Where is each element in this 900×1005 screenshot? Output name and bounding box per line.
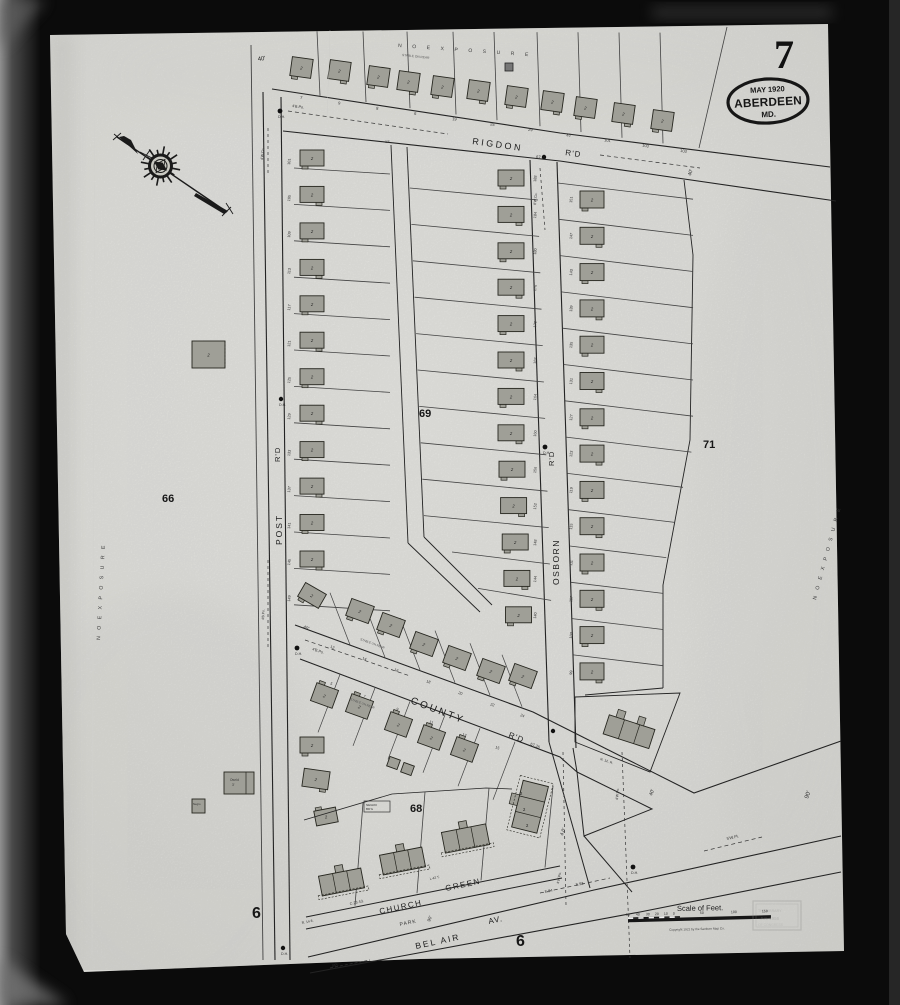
svg-text:103: 103 — [569, 632, 574, 639]
svg-text:152: 152 — [533, 503, 538, 510]
svg-text:71: 71 — [703, 439, 715, 451]
svg-text:101: 101 — [287, 158, 292, 165]
svg-text:121: 121 — [287, 340, 292, 347]
svg-text:D.H.: D.H. — [278, 115, 285, 119]
svg-text:68: 68 — [410, 803, 422, 815]
svg-text:12': 12' — [385, 140, 390, 144]
svg-text:137: 137 — [287, 486, 292, 493]
svg-text:30: 30 — [646, 912, 650, 916]
svg-text:180: 180 — [533, 248, 538, 255]
svg-text:D.H.: D.H. — [279, 403, 286, 407]
svg-text:117: 117 — [287, 304, 292, 311]
svg-text:133: 133 — [287, 450, 292, 457]
svg-text:172: 172 — [533, 321, 538, 328]
svg-text:6: 6 — [252, 905, 261, 922]
svg-text:131: 131 — [569, 378, 574, 385]
svg-text:OF CONGRESS: OF CONGRESS — [758, 923, 784, 927]
svg-text:50: 50 — [626, 913, 630, 917]
svg-text:7: 7 — [774, 32, 794, 77]
svg-text:143: 143 — [569, 269, 574, 276]
svg-text:168: 168 — [533, 357, 538, 364]
svg-text:107: 107 — [569, 596, 574, 603]
svg-text:69: 69 — [419, 408, 431, 420]
svg-text:129: 129 — [287, 413, 292, 420]
svg-text:151: 151 — [569, 196, 574, 203]
svg-text:149: 149 — [287, 595, 292, 602]
svg-text:160: 160 — [533, 430, 538, 437]
svg-text:139: 139 — [569, 305, 574, 312]
svg-text:OSBORN: OSBORN — [551, 539, 561, 585]
svg-text:156: 156 — [533, 467, 538, 474]
svg-text:123: 123 — [569, 450, 574, 457]
svg-text:4'B.Po.: 4'B.Po. — [261, 609, 266, 620]
svg-text:145: 145 — [287, 559, 292, 566]
svg-text:40': 40' — [257, 56, 266, 63]
svg-text:99: 99 — [569, 670, 573, 675]
svg-text:144: 144 — [533, 576, 538, 583]
svg-text:20: 20 — [655, 912, 659, 916]
svg-text:164: 164 — [533, 394, 538, 401]
svg-text:111: 111 — [569, 560, 574, 566]
svg-text:3': 3' — [232, 783, 235, 787]
svg-text:176: 176 — [533, 285, 538, 292]
svg-text:127: 127 — [569, 414, 574, 421]
svg-text:D.H.: D.H. — [631, 871, 638, 875]
svg-text:109: 109 — [287, 231, 292, 238]
svg-text:66: 66 — [162, 493, 174, 505]
svg-text:Own'd: Own'd — [230, 778, 239, 782]
svg-text:JUL 1956: JUL 1956 — [760, 916, 780, 921]
svg-text:141: 141 — [287, 522, 292, 529]
svg-text:188: 188 — [533, 175, 538, 182]
svg-text:115: 115 — [569, 523, 574, 530]
svg-text:147: 147 — [569, 233, 574, 240]
svg-text:BD'G: BD'G — [366, 807, 374, 811]
svg-text:10: 10 — [664, 912, 668, 916]
svg-text:6: 6 — [516, 933, 525, 950]
svg-text:THE LIBRARY: THE LIBRARY — [758, 909, 782, 913]
svg-text:105: 105 — [287, 195, 292, 202]
svg-text:140: 140 — [533, 612, 538, 619]
svg-text:MD.: MD. — [761, 110, 776, 120]
svg-text:148: 148 — [533, 539, 538, 546]
svg-text:135: 135 — [569, 342, 574, 349]
svg-text:125: 125 — [287, 377, 292, 384]
svg-text:MAY 1920: MAY 1920 — [750, 84, 785, 95]
svg-text:40: 40 — [636, 913, 640, 917]
svg-text:119: 119 — [569, 487, 574, 494]
svg-text:0: 0 — [673, 912, 675, 916]
svg-text:184: 184 — [533, 212, 538, 219]
svg-text:D.H.: D.H. — [295, 652, 302, 656]
svg-text:POST: POST — [274, 514, 284, 545]
svg-text:R'D: R'D — [273, 447, 282, 462]
svg-text:D.H.: D.H. — [281, 952, 288, 956]
svg-text:113: 113 — [287, 268, 292, 275]
svg-text:100: 100 — [731, 910, 737, 914]
svg-text:Negro: Negro — [193, 802, 201, 806]
svg-text:50: 50 — [700, 911, 704, 915]
